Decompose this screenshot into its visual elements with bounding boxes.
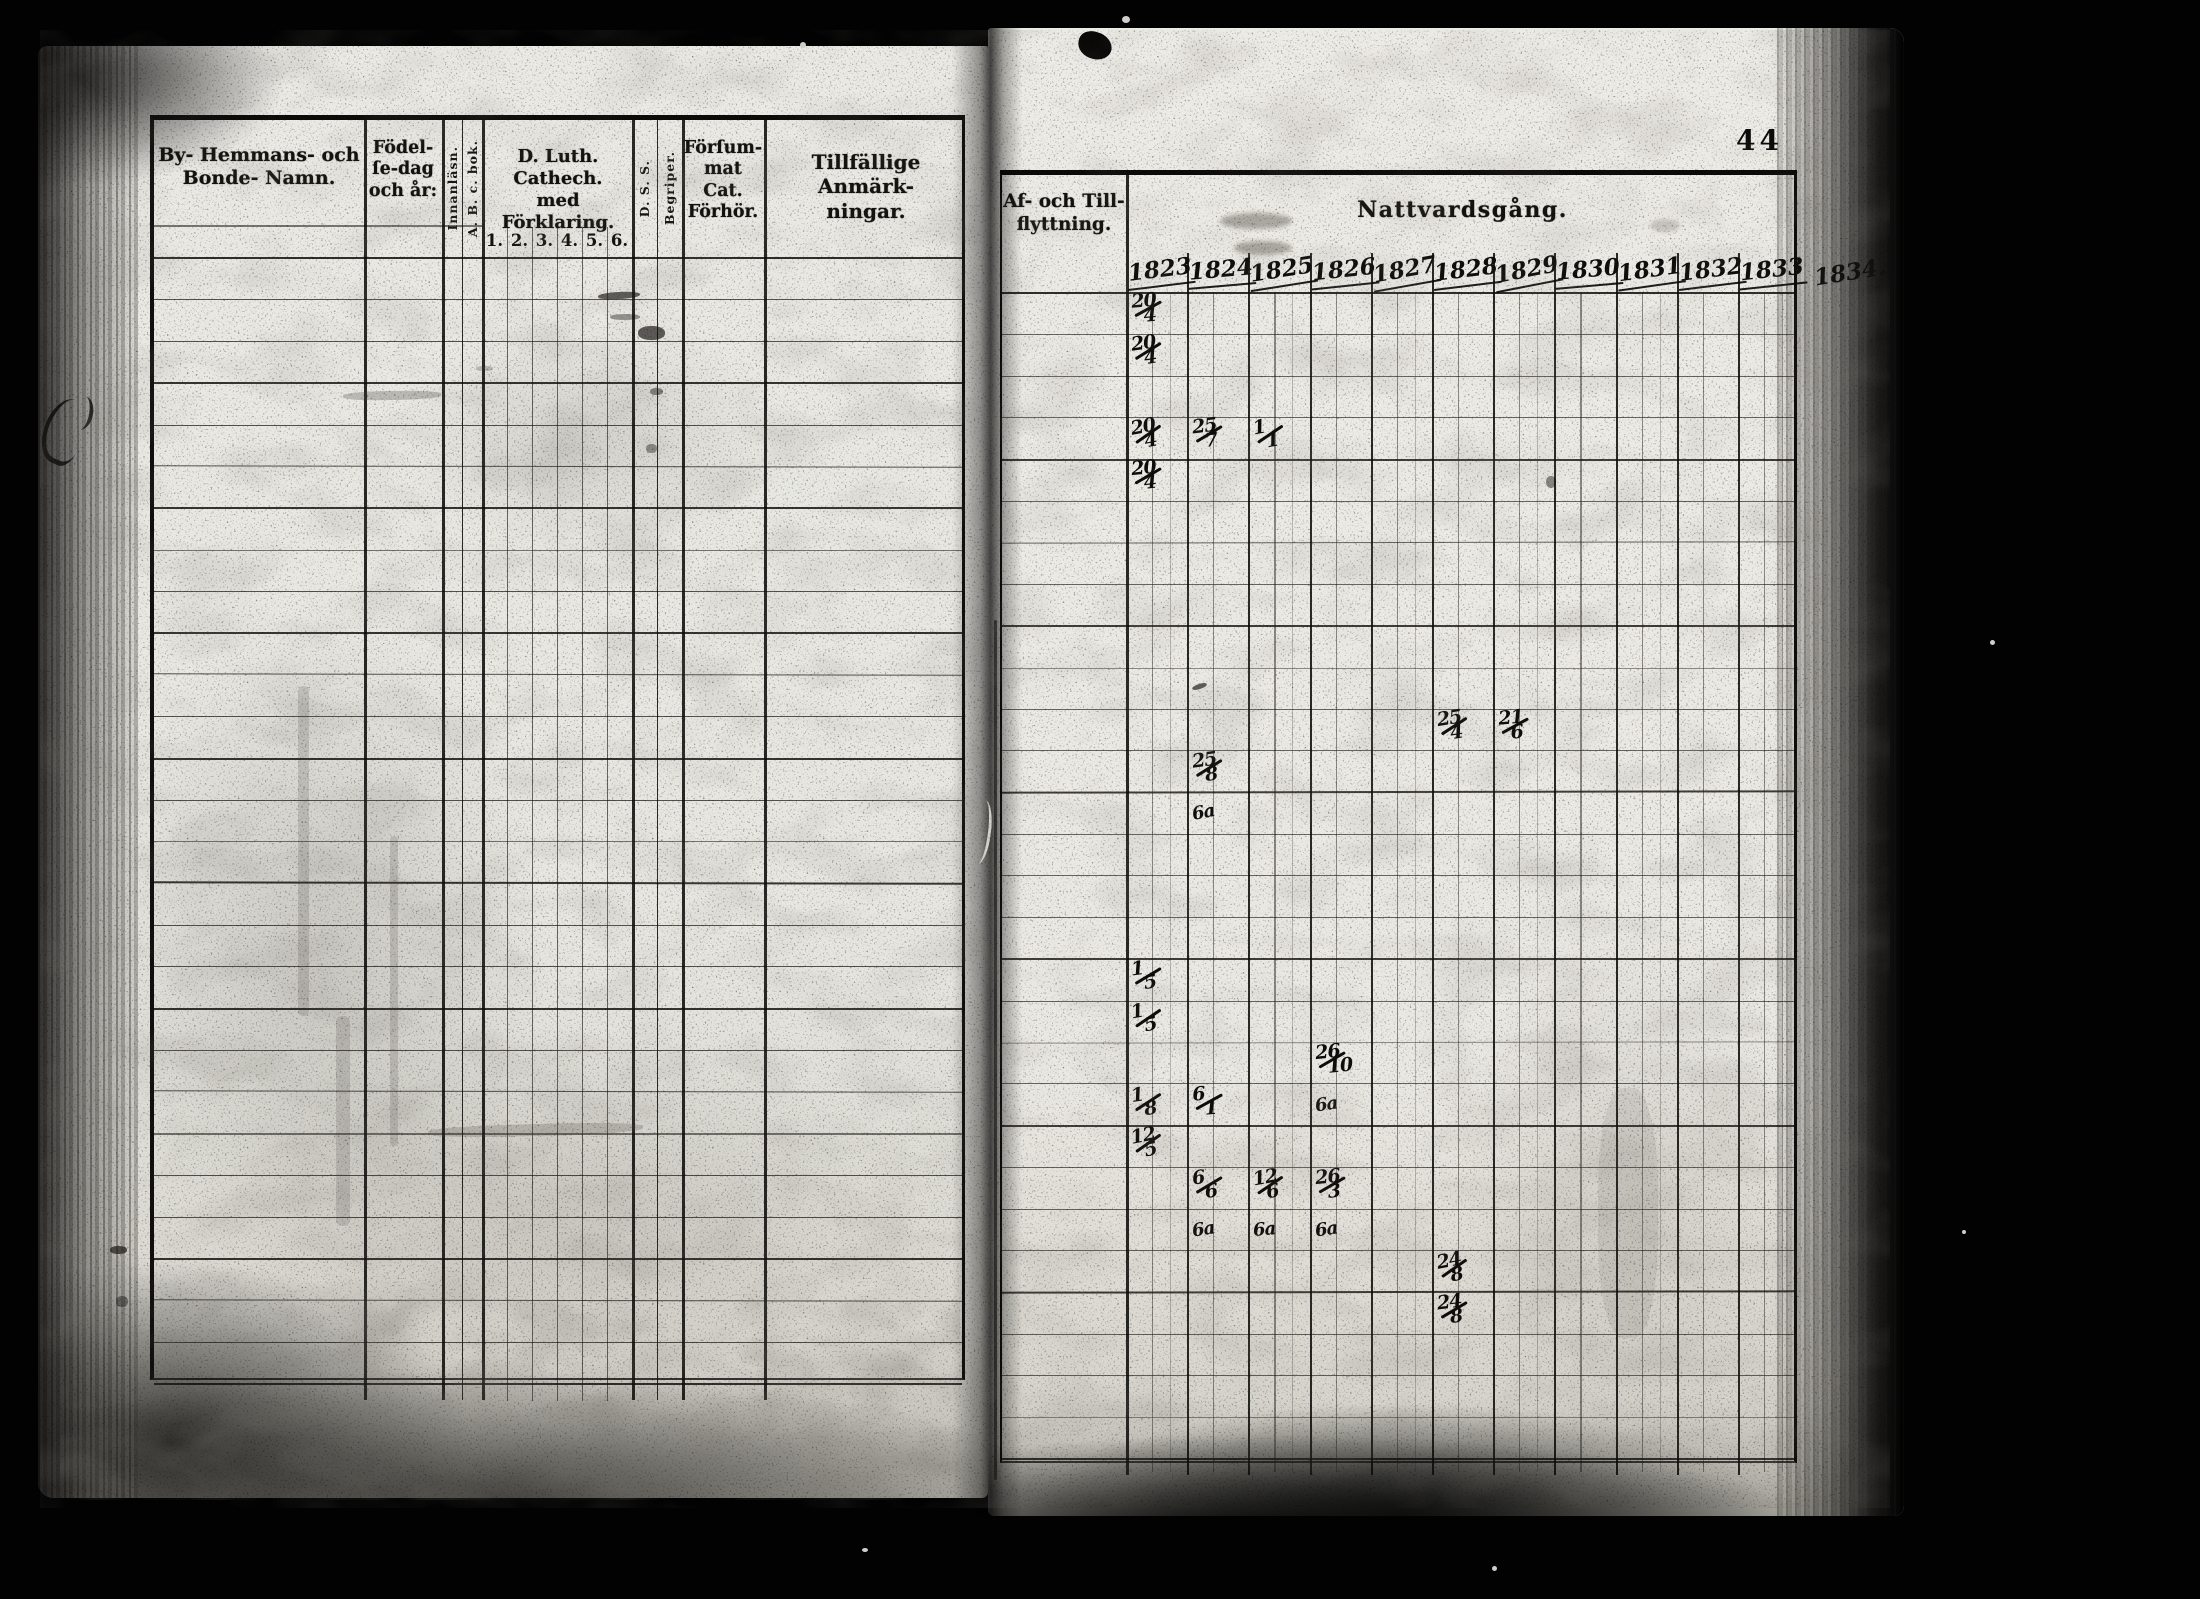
left-page: By- Hemmans- och Bonde- Namn. Födel- ſe-… xyxy=(38,46,988,1498)
table-row xyxy=(1002,543,1794,584)
ink-smudge xyxy=(476,366,493,371)
table-row xyxy=(1002,627,1794,668)
column-header-forsummat: Förſum- mat Cat. Förhör. xyxy=(682,138,764,223)
grid-line-vertical xyxy=(1738,253,1740,1475)
table-row xyxy=(1002,1084,1794,1126)
ink-smudge xyxy=(638,326,665,340)
table-row xyxy=(1002,960,1794,1001)
left-table: By- Hemmans- och Bonde- Namn. Födel- ſe-… xyxy=(150,115,965,1380)
column-header-innanlasning: Innanläsn. xyxy=(442,120,462,257)
table-row xyxy=(1002,418,1794,460)
ink-smudge xyxy=(390,836,398,1146)
column-header-dss: D. S. S. xyxy=(632,120,657,257)
year-label: 1828 xyxy=(1432,255,1493,292)
column-header-anmarkningar: Tillfällige Anmärk- ningar. xyxy=(766,150,966,223)
page-edge-left xyxy=(38,46,138,1498)
table-row xyxy=(1002,377,1794,418)
subcolumn-number: 3. xyxy=(532,227,557,257)
column-divider xyxy=(1213,292,1214,1472)
ink-smudge xyxy=(116,1296,128,1307)
table-row xyxy=(1002,1210,1794,1251)
subcolumn-number: 2. xyxy=(507,227,532,257)
year-label: 1831 xyxy=(1616,255,1677,292)
ink-smudge xyxy=(1075,28,1115,62)
grid-line-vertical xyxy=(364,120,367,1400)
grid-line-vertical xyxy=(1126,175,1129,1475)
white-speck xyxy=(862,1548,868,1552)
table-row xyxy=(1002,794,1794,835)
ink-smudge xyxy=(336,1016,350,1226)
year-label: 1823 xyxy=(1126,255,1187,292)
grid-line-vertical xyxy=(1677,253,1679,1475)
column-divider xyxy=(1782,292,1783,1472)
table-row xyxy=(1002,1250,1794,1294)
subcolumn-number: 1. xyxy=(482,227,507,257)
table-row xyxy=(1002,501,1794,544)
ink-smudge xyxy=(610,314,640,320)
subcolumn-number: 4. xyxy=(557,227,582,257)
grid-line-vertical xyxy=(1554,253,1556,1475)
year-label: 1826 xyxy=(1310,255,1371,292)
white-speck xyxy=(1990,640,1995,645)
column-divider xyxy=(1660,292,1661,1472)
table-row xyxy=(1002,1376,1794,1417)
right-page: 44 Af- och Till- flyttning. Nattvardsgån… xyxy=(988,28,1904,1516)
white-speck xyxy=(1122,16,1130,23)
header-divider-line xyxy=(154,225,482,227)
year-header-row: 1823182418251826182718281829183018311832… xyxy=(1002,255,1794,292)
table-row xyxy=(1002,461,1794,502)
column-divider xyxy=(1519,292,1520,1472)
table-row xyxy=(1002,876,1794,917)
table-row xyxy=(1002,1335,1794,1376)
table-row xyxy=(1002,751,1794,795)
record-book-scan: By- Hemmans- och Bonde- Namn. Födel- ſe-… xyxy=(0,0,2200,1599)
column-divider xyxy=(1703,292,1704,1472)
year-label: 1824 xyxy=(1187,255,1248,292)
grid-line-vertical xyxy=(582,227,583,1401)
year-label: 1832 xyxy=(1677,255,1738,292)
ink-smudge xyxy=(110,1246,127,1254)
column-divider xyxy=(1274,292,1275,1472)
white-speck xyxy=(1492,1566,1497,1571)
table-row xyxy=(1002,1001,1794,1044)
ink-smudge xyxy=(650,388,663,395)
table-row xyxy=(1002,835,1794,876)
grid-line-vertical xyxy=(682,120,685,1400)
table-row xyxy=(1002,1127,1794,1168)
year-label: 1825 xyxy=(1248,255,1309,292)
table-row xyxy=(1002,710,1794,751)
column-header-birthdate: Födel- ſe-dag och år: xyxy=(364,138,442,202)
ink-smudge xyxy=(646,444,657,453)
column-header-cathech: D. Luth. Cathech. med Förklaring. xyxy=(484,146,632,234)
column-divider xyxy=(1764,292,1765,1472)
table-row xyxy=(1002,1418,1794,1460)
table-row xyxy=(1002,1043,1794,1084)
table-row xyxy=(1002,585,1794,627)
grid-line-vertical xyxy=(1493,253,1495,1475)
grid-line-vertical xyxy=(557,227,558,1401)
year-label: 1833 xyxy=(1738,255,1799,292)
ink-smudge xyxy=(1598,1088,1658,1338)
year-label: 1830 xyxy=(1554,255,1615,292)
subcolumn-number: 5. xyxy=(582,227,607,257)
ghost-text-smudge xyxy=(1220,213,1292,229)
grid-line-vertical xyxy=(657,120,658,1400)
grid-line-vertical xyxy=(1187,253,1189,1475)
page-number: 44 xyxy=(1736,124,1783,157)
column-divider xyxy=(1152,292,1153,1472)
right-table: Af- och Till- flyttning. Nattvardsgång. … xyxy=(1000,170,1797,1463)
column-header-abc-bok: A. B. c. bok. xyxy=(462,120,482,257)
column-divider xyxy=(1397,292,1398,1472)
ghost-text-smudge xyxy=(1650,219,1680,232)
column-divider xyxy=(1170,292,1171,1472)
gutter-crease xyxy=(994,620,997,1480)
subcolumn-number: 6. xyxy=(607,227,632,257)
table-row xyxy=(1002,335,1794,376)
column-divider xyxy=(1537,292,1538,1472)
column-header-begriper: Begriper. xyxy=(657,120,682,257)
grid-line-vertical xyxy=(632,120,635,1400)
column-header-name: By- Hemmans- och Bonde- Namn. xyxy=(154,144,364,190)
grid-line-vertical xyxy=(1432,253,1434,1475)
table-row xyxy=(1002,918,1794,960)
table-row xyxy=(1002,294,1794,335)
year-label: 1829 xyxy=(1493,255,1554,292)
ink-smudge xyxy=(298,686,309,1016)
grid-line-vertical xyxy=(1310,253,1312,1475)
column-divider xyxy=(1336,292,1337,1472)
grid-line-vertical xyxy=(507,227,508,1401)
grid-line-vertical xyxy=(462,120,463,1400)
column-divider xyxy=(1292,292,1293,1472)
grid-line-vertical xyxy=(607,227,608,1401)
column-divider xyxy=(1458,292,1459,1472)
year-label: 1827 xyxy=(1371,255,1432,292)
grid-line-vertical xyxy=(482,120,485,1400)
column-divider xyxy=(1415,292,1416,1472)
right-table-body xyxy=(1002,292,1794,1460)
table-row xyxy=(1002,1168,1794,1209)
white-speck xyxy=(800,42,806,48)
column-header-flyttning: Af- och Till- flyttning. xyxy=(1002,191,1126,236)
ink-smudge xyxy=(1546,476,1556,488)
white-speck xyxy=(1962,1230,1966,1234)
cathech-subcolumns: 1.2.3.4.5.6. xyxy=(482,227,632,257)
grid-line-vertical xyxy=(442,120,445,1400)
column-divider xyxy=(1580,292,1581,1472)
table-row xyxy=(1002,669,1794,710)
table-row xyxy=(1002,1293,1794,1334)
grid-line-vertical xyxy=(764,120,767,1400)
grid-line-vertical xyxy=(1371,253,1373,1475)
grid-line-vertical xyxy=(532,227,533,1401)
grid-line-vertical xyxy=(1248,253,1250,1475)
